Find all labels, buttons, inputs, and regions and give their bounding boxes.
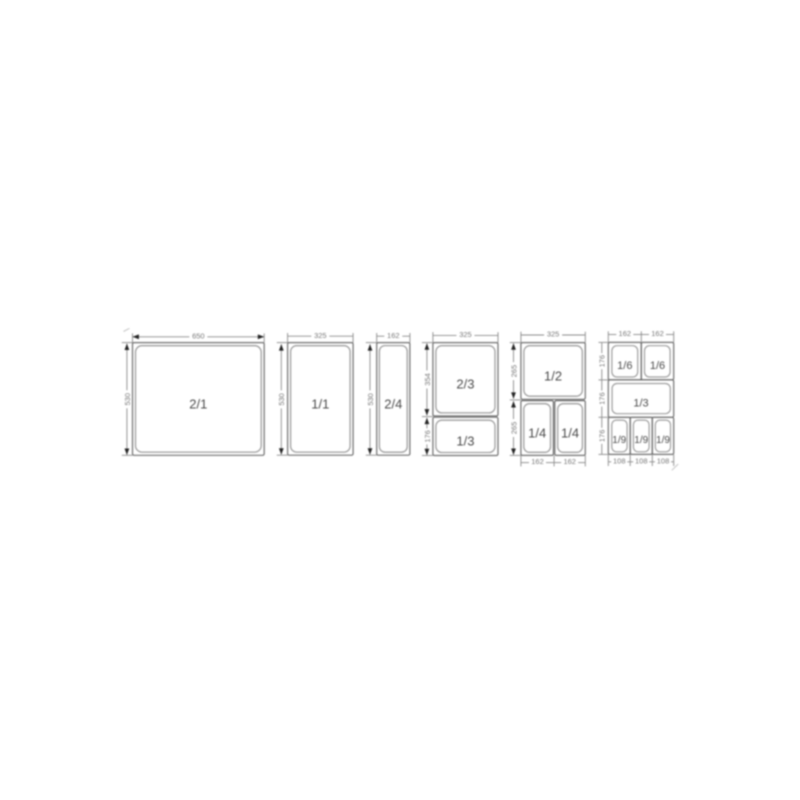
svg-text:1/4: 1/4 [528, 425, 546, 440]
svg-text:265: 265 [509, 422, 518, 435]
svg-text:162: 162 [563, 457, 576, 466]
svg-text:1/2: 1/2 [544, 368, 562, 383]
svg-text:2/3: 2/3 [456, 377, 474, 392]
svg-text:354: 354 [423, 373, 432, 386]
svg-text:162: 162 [531, 457, 544, 466]
svg-text:108: 108 [657, 456, 670, 465]
svg-text:650: 650 [192, 331, 205, 340]
svg-text:1/1: 1/1 [311, 396, 329, 411]
svg-text:162: 162 [651, 329, 664, 338]
svg-text:2/4: 2/4 [384, 396, 402, 411]
svg-text:1/9: 1/9 [656, 435, 670, 446]
svg-text:162: 162 [387, 331, 400, 340]
svg-text:162: 162 [619, 329, 632, 338]
svg-text:1/9: 1/9 [612, 435, 626, 446]
svg-text:530: 530 [123, 393, 132, 406]
svg-text:1/9: 1/9 [634, 435, 648, 446]
svg-text:1/6: 1/6 [617, 360, 632, 372]
svg-text:1/3: 1/3 [456, 434, 474, 449]
svg-text:265: 265 [509, 365, 518, 378]
svg-text:530: 530 [277, 393, 286, 406]
svg-text:325: 325 [459, 330, 472, 339]
svg-text:176: 176 [598, 392, 607, 405]
svg-text:176: 176 [598, 430, 607, 443]
svg-text:108: 108 [635, 456, 648, 465]
svg-text:2/1: 2/1 [189, 396, 207, 411]
svg-text:176: 176 [598, 355, 607, 368]
svg-text:325: 325 [547, 330, 560, 339]
svg-text:108: 108 [613, 456, 626, 465]
svg-text:1/4: 1/4 [561, 425, 579, 440]
svg-text:1/3: 1/3 [633, 398, 648, 410]
svg-text:176: 176 [423, 430, 432, 443]
svg-text:530: 530 [366, 393, 375, 406]
svg-text:1/6: 1/6 [650, 360, 665, 372]
svg-text:325: 325 [314, 331, 327, 340]
